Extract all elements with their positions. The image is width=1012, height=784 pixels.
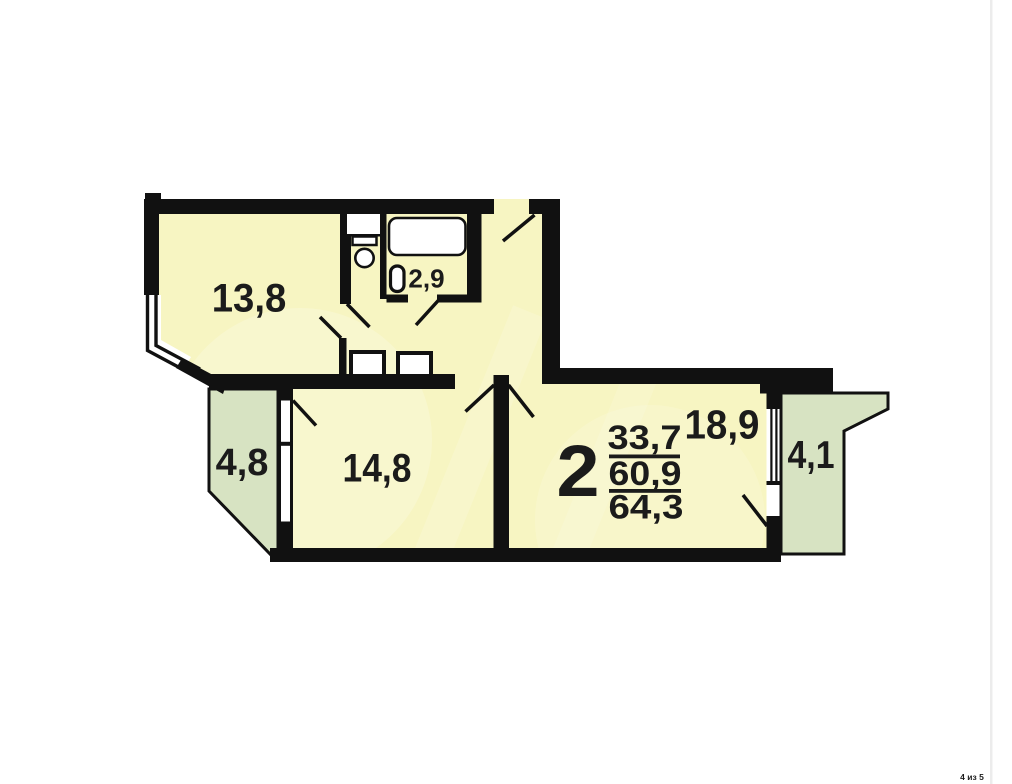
svg-text:4,8: 4,8 (216, 442, 269, 484)
svg-text:4,1: 4,1 (788, 434, 835, 477)
svg-text:14,8: 14,8 (343, 447, 412, 491)
svg-text:18,9: 18,9 (685, 402, 760, 448)
svg-text:13,8: 13,8 (212, 277, 287, 321)
svg-text:2,9: 2,9 (408, 264, 444, 294)
svg-text:2: 2 (557, 431, 600, 512)
svg-text:64,3: 64,3 (609, 489, 684, 527)
svg-text:4 из 5: 4 из 5 (960, 772, 984, 782)
svg-text:33,7: 33,7 (608, 419, 682, 457)
svg-text:60,9: 60,9 (609, 455, 682, 493)
